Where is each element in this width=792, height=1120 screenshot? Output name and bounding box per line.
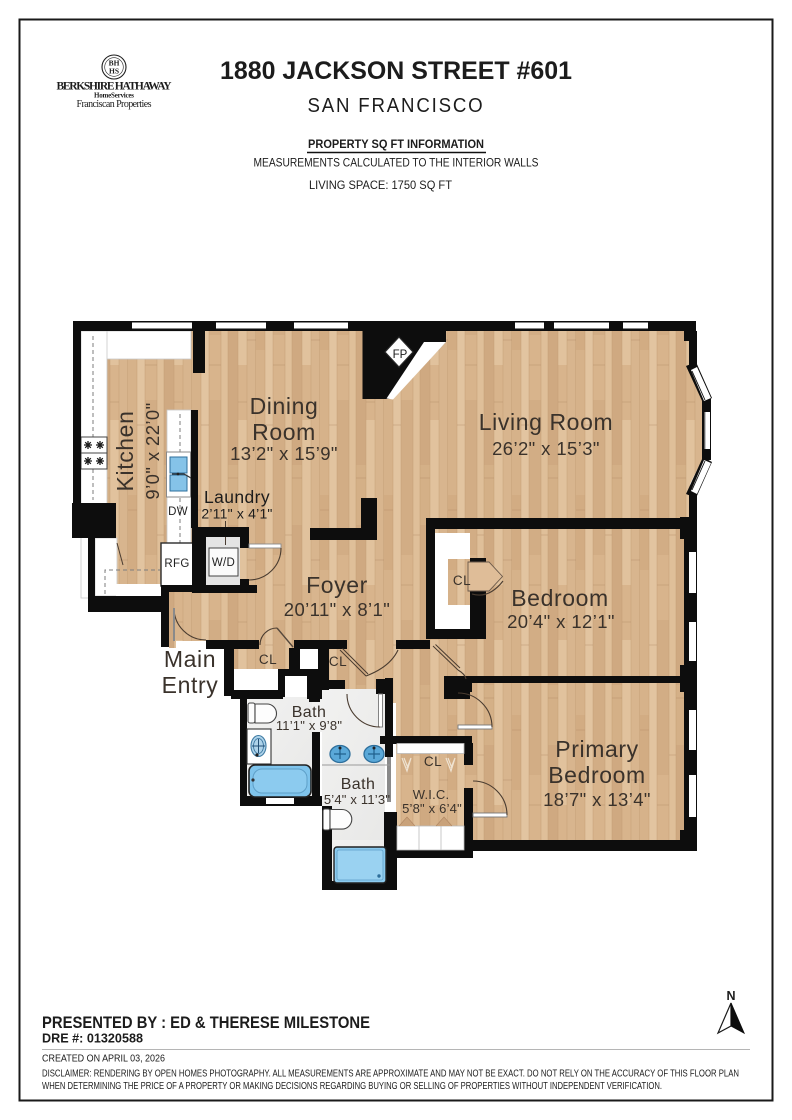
- svg-text:DW: DW: [168, 506, 188, 518]
- svg-text:5’4" x 11’3": 5’4" x 11’3": [324, 792, 390, 807]
- svg-text:CL: CL: [453, 573, 471, 588]
- svg-text:20’4" x 12’1": 20’4" x 12’1": [507, 611, 615, 632]
- svg-text:20’11" x 8’1": 20’11" x 8’1": [284, 599, 390, 620]
- svg-text:DISCLAIMER: RENDERING BY OPEN: DISCLAIMER: RENDERING BY OPEN HOMES PHOT…: [42, 1069, 739, 1080]
- svg-text:11’1" x 9’8": 11’1" x 9’8": [276, 718, 342, 733]
- svg-text:Bedroom: Bedroom: [548, 762, 646, 788]
- svg-text:Main: Main: [164, 646, 216, 672]
- svg-text:N: N: [726, 989, 735, 1003]
- svg-text:Franciscan Properties: Franciscan Properties: [77, 99, 152, 110]
- svg-text:Living Room: Living Room: [479, 409, 613, 435]
- svg-text:MEASUREMENTS CALCULATED TO THE: MEASUREMENTS CALCULATED TO THE INTERIOR …: [254, 156, 539, 170]
- svg-text:Room: Room: [252, 419, 316, 445]
- svg-text:PRESENTED BY : ED & THERESE MI: PRESENTED BY : ED & THERESE MILESTONE: [42, 1013, 370, 1032]
- svg-text:Bedroom: Bedroom: [511, 585, 609, 611]
- svg-text:Foyer: Foyer: [306, 572, 368, 598]
- svg-text:Entry: Entry: [162, 672, 219, 698]
- svg-text:26’2" x 15’3": 26’2" x 15’3": [492, 438, 600, 459]
- svg-text:W/D: W/D: [212, 557, 235, 569]
- svg-text:Laundry: Laundry: [204, 487, 270, 507]
- svg-text:CREATED ON APRIL 03, 2026: CREATED ON APRIL 03, 2026: [42, 1053, 165, 1065]
- svg-text:1880 JACKSON STREET #601: 1880 JACKSON STREET #601: [220, 57, 572, 85]
- svg-text:5’8" x 6’4": 5’8" x 6’4": [402, 801, 462, 816]
- svg-text:SAN FRANCISCO: SAN FRANCISCO: [308, 94, 485, 117]
- svg-text:9’0" x 22’0": 9’0" x 22’0": [142, 402, 163, 499]
- svg-text:Primary: Primary: [555, 736, 638, 762]
- svg-text:18’7" x 13’4": 18’7" x 13’4": [543, 789, 651, 810]
- svg-text:Bath: Bath: [341, 776, 376, 793]
- svg-text:DRE #: 01320588: DRE #: 01320588: [42, 1031, 143, 1046]
- svg-text:LIVING SPACE: 1750 SQ FT: LIVING SPACE: 1750 SQ FT: [309, 178, 453, 192]
- svg-text:13’2" x 15’9": 13’2" x 15’9": [230, 443, 338, 464]
- svg-text:Kitchen: Kitchen: [112, 411, 138, 492]
- svg-text:2’11" x 4’1": 2’11" x 4’1": [201, 506, 272, 522]
- svg-text:CL: CL: [329, 654, 347, 669]
- svg-text:Dining: Dining: [250, 393, 319, 419]
- svg-text:CL: CL: [259, 652, 277, 667]
- svg-text:PROPERTY SQ FT INFORMATION: PROPERTY SQ FT INFORMATION: [308, 137, 484, 151]
- svg-text:WHEN DETERMINING THE PRICE OF: WHEN DETERMINING THE PRICE OF A PROPERTY…: [42, 1081, 662, 1092]
- svg-text:FP: FP: [393, 349, 408, 361]
- svg-text:W.I.C.: W.I.C.: [413, 787, 450, 802]
- svg-text:HS: HS: [109, 67, 119, 76]
- svg-text:CL: CL: [424, 754, 442, 769]
- svg-text:RFG: RFG: [164, 558, 189, 570]
